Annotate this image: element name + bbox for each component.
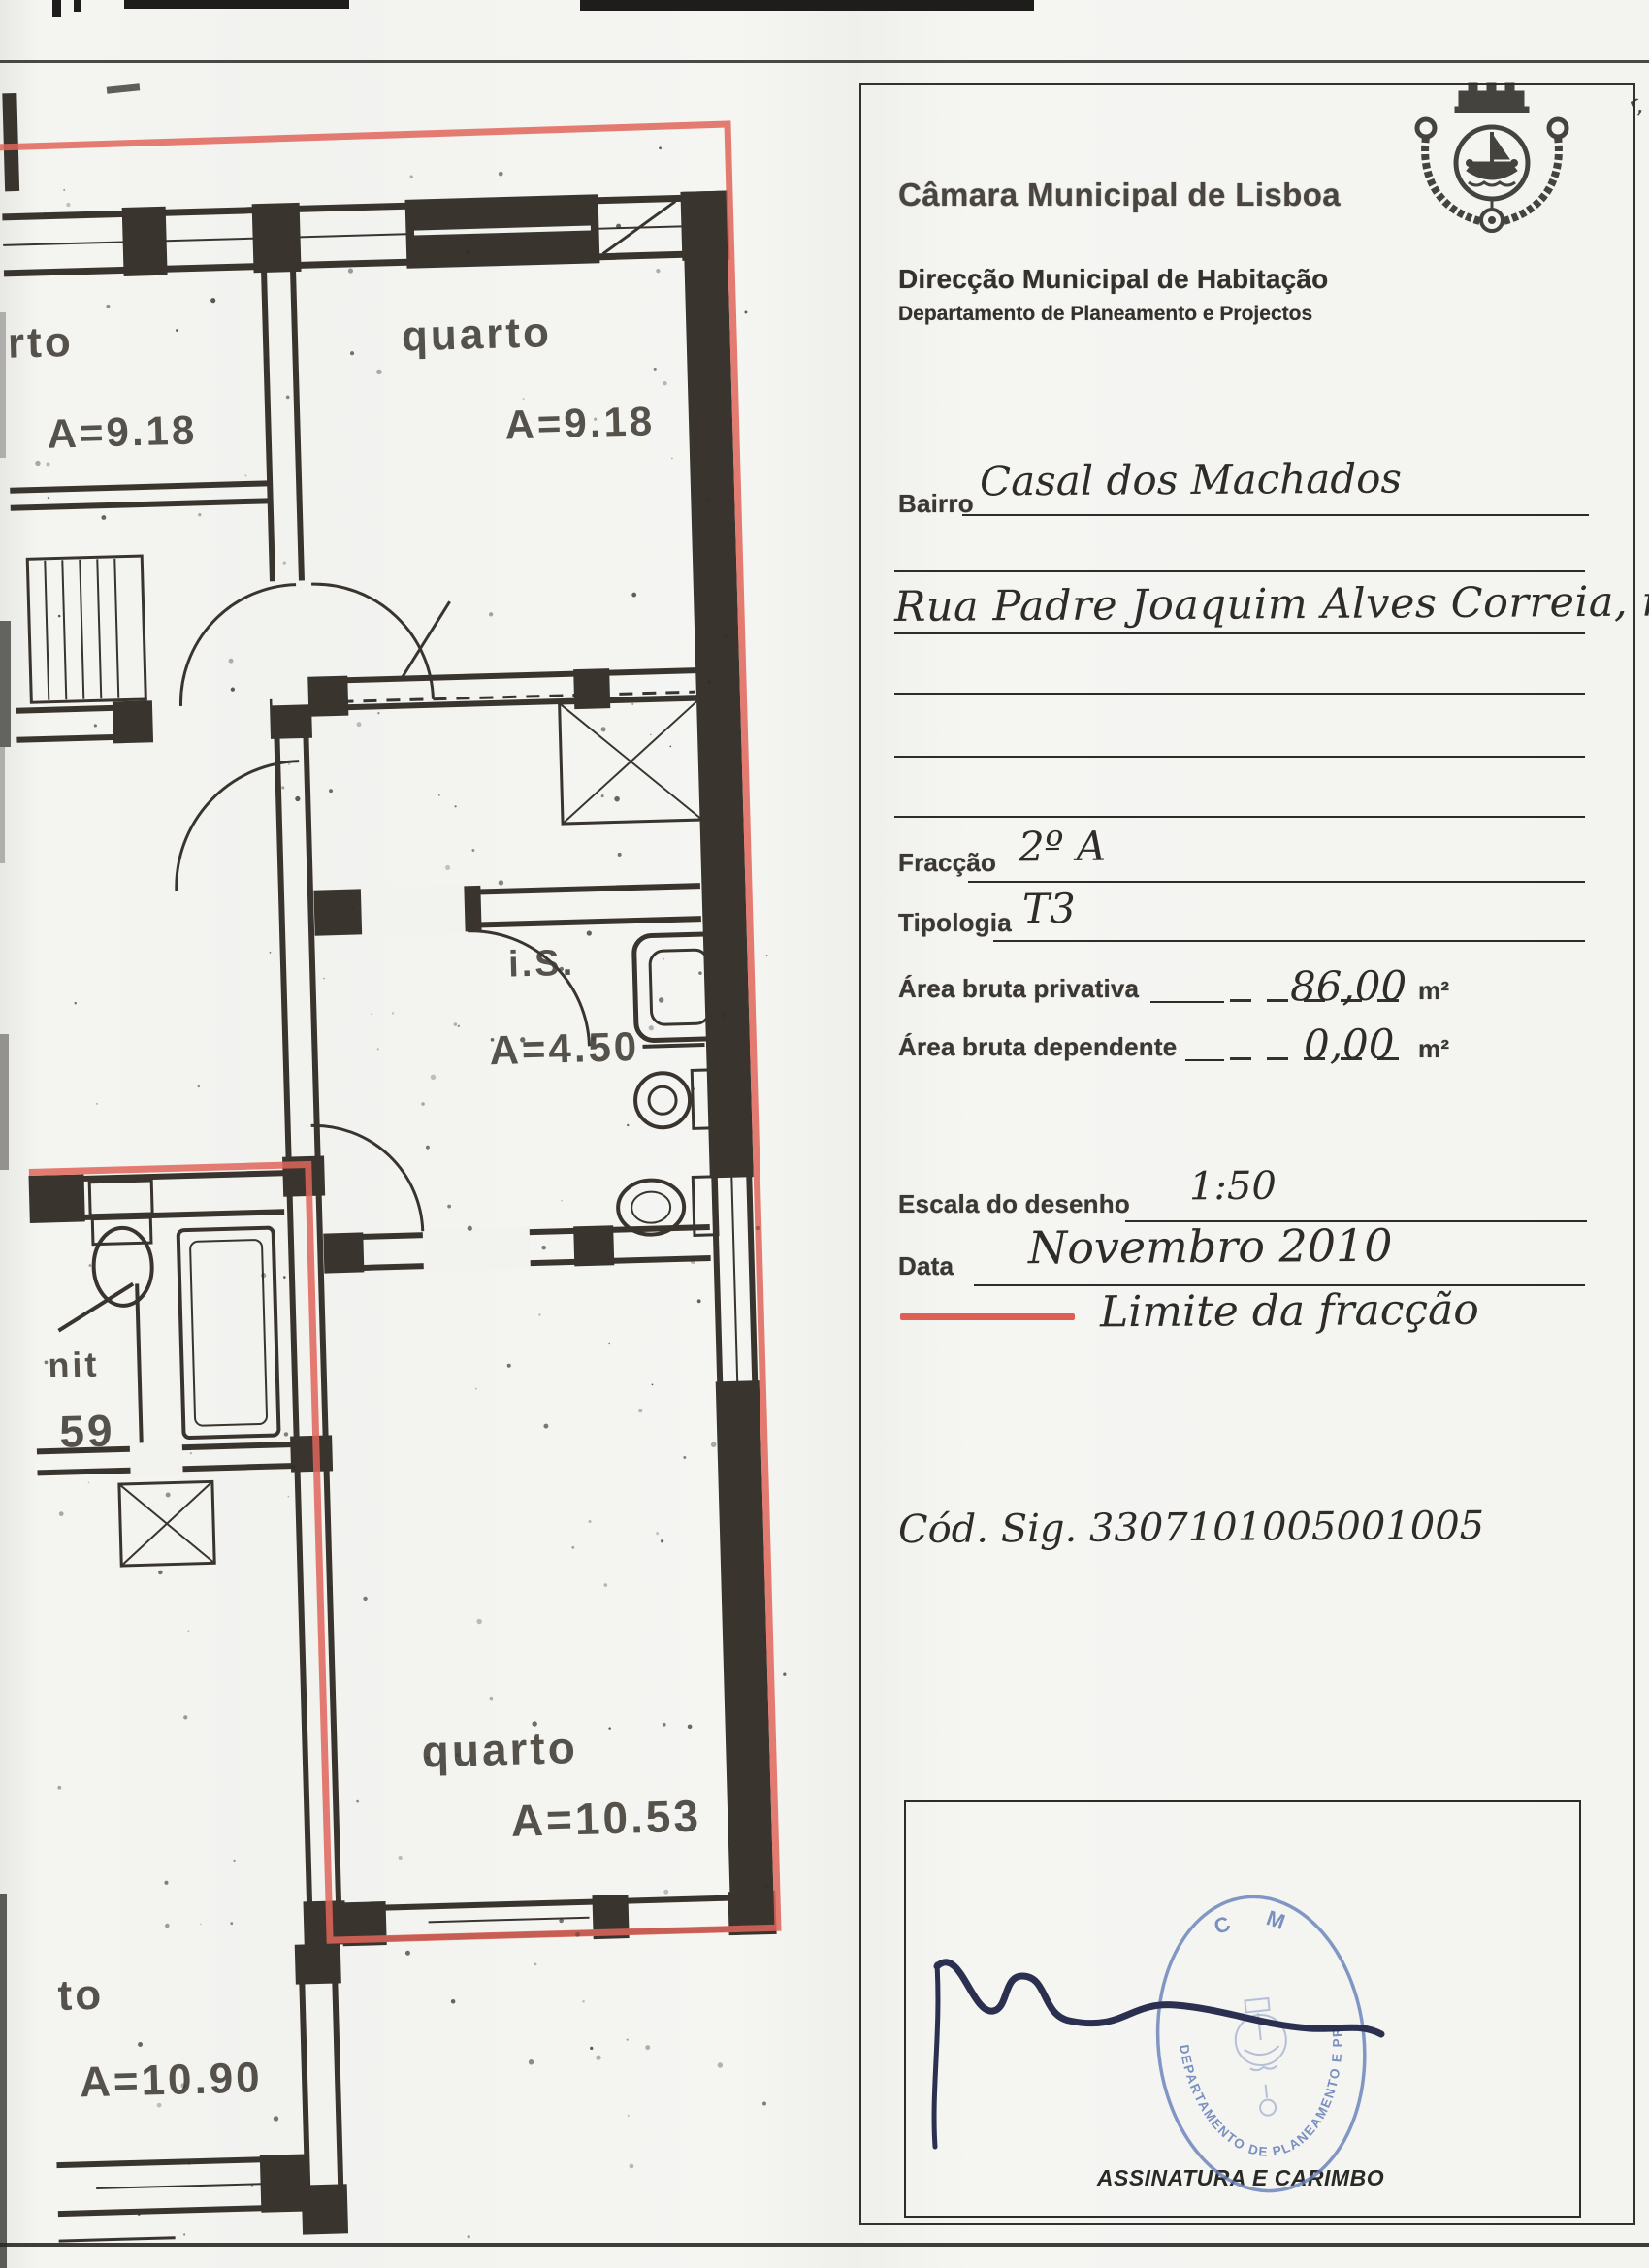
- area-privativa-label: Área bruta privativa: [898, 974, 1139, 1004]
- room-label: i.S.: [508, 943, 576, 986]
- room-area: A=10.53: [510, 1790, 702, 1845]
- field-line: [993, 940, 1585, 942]
- walls: [0, 74, 784, 2241]
- legend-red-line: [900, 1313, 1075, 1320]
- tipologia-label: Tipologia: [898, 908, 1012, 938]
- sub-dept-title: Departamento de Planeamento e Projectos: [898, 303, 1312, 326]
- data-label: Data: [898, 1251, 954, 1281]
- scanned-document-page: ‹,: [0, 0, 1649, 2268]
- data-value: Novembro 2010: [1028, 1219, 1393, 1275]
- escala-value: 1:50: [1189, 1164, 1277, 1210]
- field-line: [968, 881, 1585, 883]
- field-line: [894, 693, 1585, 695]
- org-title: Câmara Municipal de Lisboa: [898, 177, 1341, 213]
- lisbon-coat-of-arms-icon: [1405, 74, 1579, 239]
- field-line: [1150, 1001, 1224, 1003]
- floor-plan: rto A=9.18 quarto A=9.18 i.S. A=4.50 qua…: [0, 0, 854, 2268]
- room-label: rto: [7, 318, 74, 368]
- tipologia-value: T3: [1022, 885, 1076, 932]
- bairro-value: Casal dos Machados: [980, 454, 1402, 504]
- field-line: [962, 514, 1589, 516]
- field-line: [894, 756, 1585, 758]
- escala-label: Escala do desenho: [898, 1189, 1130, 1219]
- room-area: A=4.50: [489, 1023, 640, 1073]
- cod-sig: Cód. Sig. 3307101005001005: [898, 1504, 1484, 1552]
- room-label: nit: [48, 1345, 100, 1385]
- legend-label: Limite da fracção: [1100, 1285, 1479, 1338]
- unit-m2: m²: [1418, 1034, 1449, 1064]
- area-privativa-value: 86,00: [1290, 962, 1407, 1011]
- area-dependente-value: 0,00: [1304, 1021, 1395, 1069]
- dept-title: Direcção Municipal de Habitação: [898, 264, 1328, 295]
- room-area: A=10.90: [79, 2054, 263, 2106]
- field-line: [894, 570, 1585, 572]
- area-dependente-label: Área bruta dependente: [898, 1032, 1177, 1062]
- fraccao-label: Fracção: [898, 848, 996, 878]
- room-label: to: [57, 1971, 105, 2020]
- room-label: quarto: [401, 308, 552, 360]
- room-area: A=9.18: [504, 398, 656, 447]
- room-area: A=9.18: [47, 406, 198, 456]
- room-area: 59: [59, 1405, 116, 1457]
- field-line: [894, 632, 1585, 634]
- unit-m2: m²: [1418, 976, 1449, 1006]
- address-value: Rua Padre Joaquim Alves Correia, nº 6: [894, 577, 1649, 632]
- field-line: [1185, 1059, 1224, 1061]
- fraccao-value: 2º A: [1018, 823, 1106, 871]
- fraction-boundary-line: [0, 124, 778, 1948]
- signature-scribble: [902, 1887, 1445, 2178]
- field-line: [894, 816, 1585, 818]
- room-label: quarto: [421, 1722, 578, 1776]
